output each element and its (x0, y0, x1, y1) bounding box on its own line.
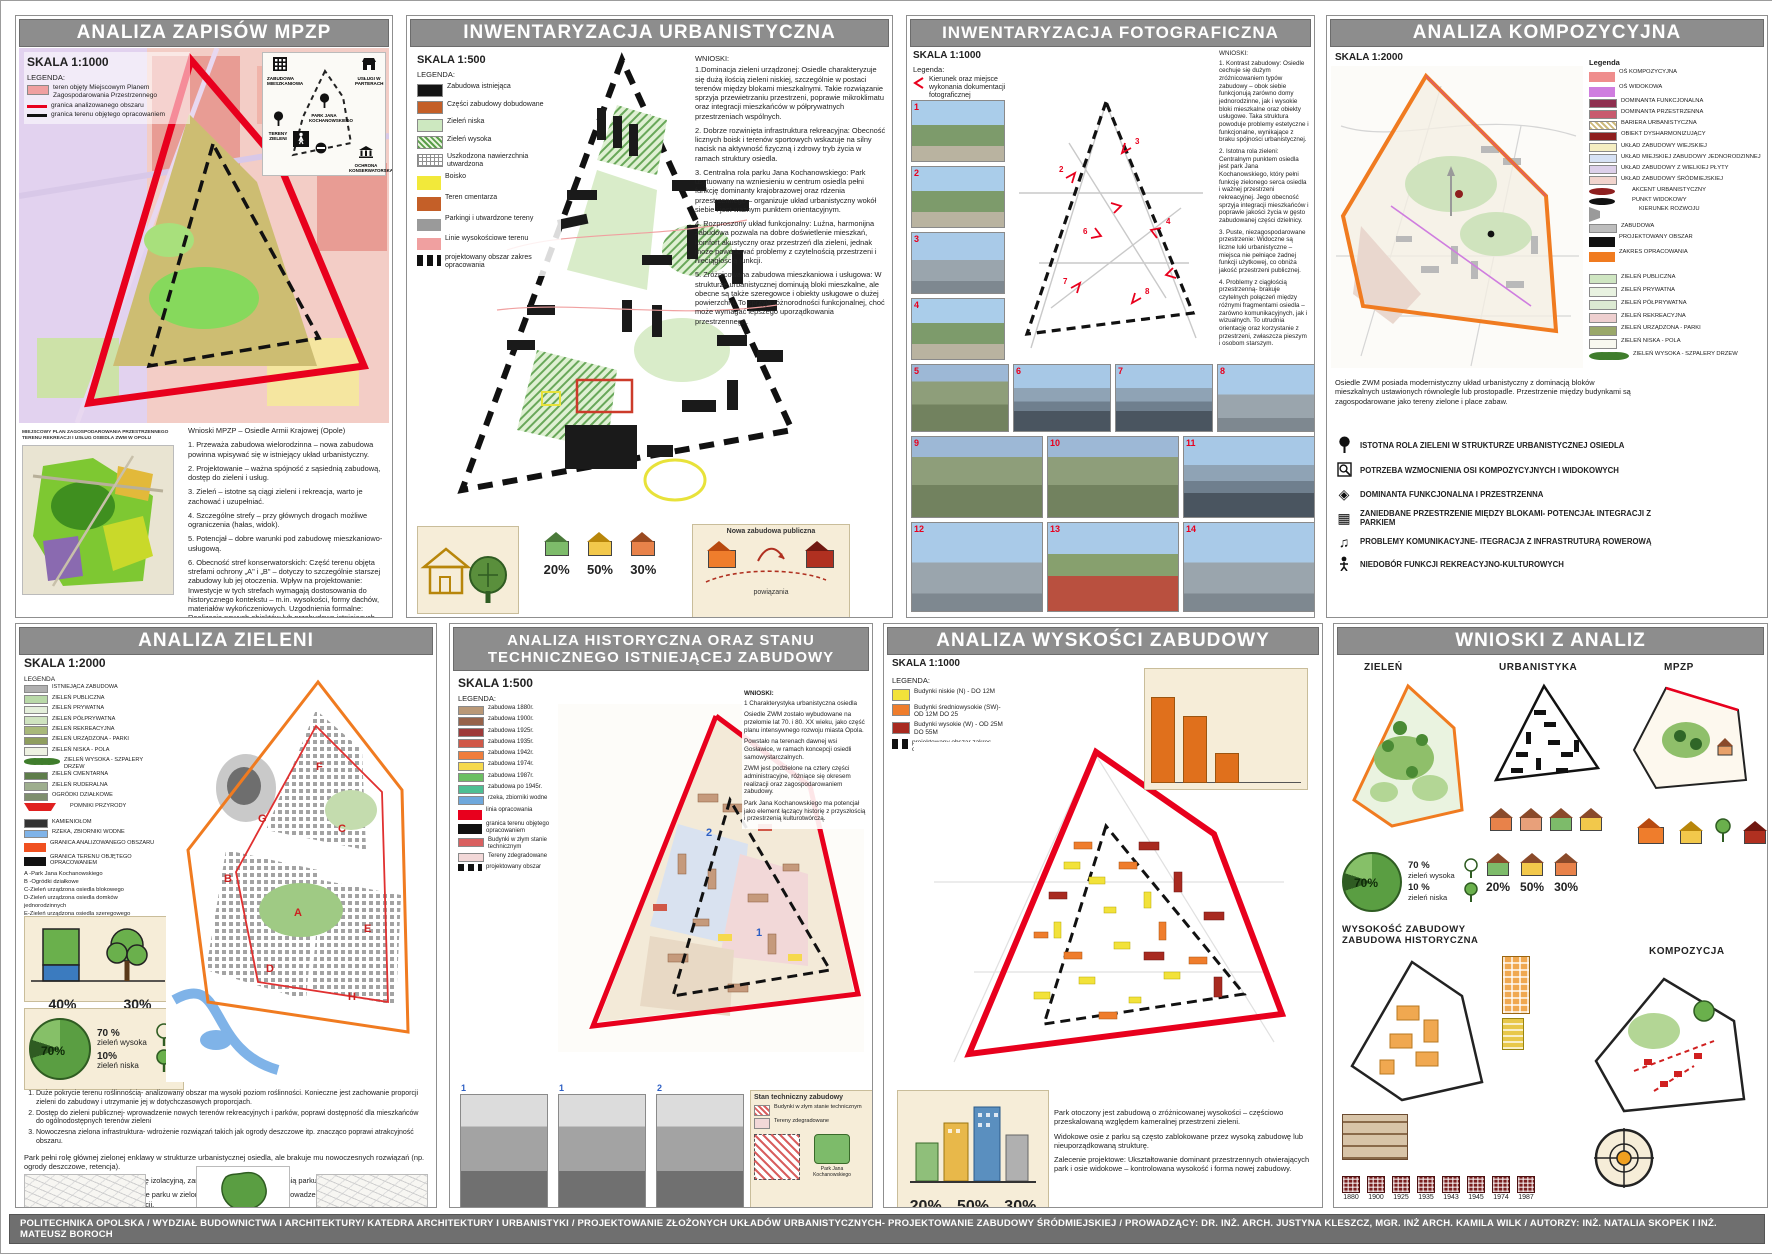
legend-swatch (754, 1105, 770, 1116)
legend-item: ZIELEŃ PRYWATNA (1589, 287, 1761, 298)
chart-bar (1215, 753, 1239, 783)
svg-text:6: 6 (1083, 227, 1088, 236)
legend-swatch (458, 728, 484, 737)
wnioski-paragraph: 3. Centralna rola parku Jana Kochanowski… (695, 168, 887, 214)
photo: 3 (911, 232, 1005, 294)
shop-icon (362, 57, 376, 71)
wnioski-paragraph: Osiedle ZWM zostało wybudowane na przeło… (744, 711, 868, 734)
legend-item: DOMINANTA PRZESTRZENNA (1589, 109, 1761, 119)
legend-swatch (1589, 274, 1617, 284)
legend-item: ZIELEŃ PUBLICZNA (1589, 274, 1761, 285)
legend-item: PUNKT WIDOKOWY (1589, 197, 1761, 205)
letter-item: C-Zieleń urządzona osiedla blokowego (24, 887, 159, 895)
legend-item: Zieleń wysoka (417, 136, 559, 150)
legend-item: AKCENT URBANISTYCZNY (1589, 187, 1761, 195)
svg-text:B: B (224, 873, 232, 885)
pie-chart: 70% (1342, 852, 1402, 912)
photo: 1 (911, 100, 1005, 162)
legend-swatch (1589, 176, 1617, 185)
panel-title: WNIOSKI Z ANALIZ (1337, 627, 1764, 655)
legend-label: LEGENDA: (27, 73, 187, 82)
legend-item: GRANICA TERENU OBJĘTEGO OPRACOWANIEM (24, 854, 159, 867)
inventory-wnioski: WNIOSKI: 1.Dominacja zieleni urządzonej:… (695, 54, 887, 331)
legend-item: ZIELEŃ REKREACYJNA (1589, 313, 1761, 324)
legend-item: Budynki średniowysokie (SW)- OD 12M DO 2… (892, 704, 1012, 719)
legend-item: Linie wysokościowe terenu (417, 235, 559, 251)
svg-text:7: 7 (1063, 277, 1068, 286)
legend-item: Uszkodzona nawierzchnia utwardzona (417, 153, 559, 169)
mpzp-wnioski: Wnioski MPZP – Osiedle Armii Krajowej (O… (188, 426, 386, 617)
legend-swatch (1589, 188, 1615, 195)
park-sketch-2 (316, 1174, 428, 1207)
pie-labels: 70 % zieleń wysoka 10 % zieleń niska (1408, 861, 1455, 902)
house-icon (1680, 830, 1702, 844)
pct-house: 20% (541, 530, 573, 610)
wnioski-paragraph: 1.Dominacja zieleni urządzonej: Osiedle … (695, 65, 887, 121)
legend-swatch (24, 716, 48, 725)
scheme-item-park: PARK JANA KOCHANOWSKIEGO (309, 93, 339, 123)
photo: 13 (1047, 522, 1179, 612)
legend-swatch (24, 857, 46, 867)
mpzp-minimap-block: MIEJSCOWY PLAN ZAGOSPODAROWANIA PRZESTRZ… (22, 430, 180, 600)
legend-swatch (1589, 352, 1615, 360)
legend-item: ZIELEŃ URZĄDZONA - PARKI (1589, 325, 1761, 336)
no-entry-icon (315, 141, 327, 159)
panel-inwentaryzacja-urbanistyczna: INWENTARYZACJA URBANISTYCZNA (406, 15, 893, 618)
legend-swatch (458, 762, 484, 771)
scale-label: SKALA 1:500 (417, 54, 559, 66)
legend-swatch (24, 843, 46, 853)
chart-bar (1183, 716, 1207, 783)
wnioski-label: WNIOSKI: (744, 690, 868, 698)
legend-item: RZEKA, ZBIORNIKI WODNE (24, 829, 159, 838)
legend-item: DOMINANTA FUNKCJONALNA (1589, 98, 1761, 108)
house-icon (1490, 817, 1512, 831)
tree-icons (1461, 858, 1481, 906)
legend-swatch (417, 101, 443, 114)
wnioski-label: WNIOSKI: (1219, 50, 1309, 58)
wnioski-title: Wnioski MPZP – Osiedle Armii Krajowej (O… (188, 426, 386, 435)
legend-item: teren objęty Miejscowym Planem Zagospoda… (27, 84, 187, 99)
mpzp-icons-row (1634, 816, 1767, 844)
note-paragraph: Park otoczony jest zabudową o zróżnicowa… (1054, 1108, 1310, 1127)
photo: 4 (911, 298, 1005, 360)
park-shape (216, 1169, 270, 1207)
letter-item: A -Park Jana Kochanowskiego (24, 871, 159, 879)
scale-label: SKALA 1:500 (458, 676, 533, 690)
legend-swatch (417, 154, 443, 167)
legend-swatch (1589, 287, 1617, 297)
card-label-top: Nowa zabudowa publiczna (696, 528, 846, 535)
year-item: 1880 (1342, 1176, 1360, 1201)
legend-swatch (1589, 72, 1615, 82)
tree-icon (272, 111, 285, 126)
svg-text:H: H (348, 991, 356, 1003)
legend-swatch (417, 197, 441, 211)
legend-swatch (892, 704, 910, 716)
svg-text:D: D (266, 963, 274, 975)
composition-paragraph: Osiedle ZWM posiada modernistyczny układ… (1335, 378, 1635, 411)
legend-swatch (1589, 143, 1617, 152)
legend-swatch (458, 785, 484, 794)
legend-swatch (1589, 87, 1615, 97)
conclusion-item: Nowoczesna zielona infrastruktura- wdroż… (36, 1129, 426, 1147)
panel-wnioski-z-analiz: WNIOSKI Z ANALIZ ZIELEŃ URBANISTYKA MPZP (1333, 623, 1768, 1208)
history-wnioski: WNIOSKI: 1 Charakterystyka urbanistyczna… (742, 688, 870, 829)
legend-item: ZIELEŃ RUDERALNA (24, 782, 159, 791)
photo: 7 (1115, 364, 1213, 432)
card-new-public: Nowa zabudowa publiczna powiązania (692, 524, 850, 617)
photo: 5 (911, 364, 1009, 432)
photo-legend: SKALA 1:1000 Legenda: Kierunek oraz miej… (913, 50, 1023, 103)
legend-item: GRANICA ANALIZOWANEGO OBSZARU (24, 840, 159, 853)
green-legend: LEGENDA ISTNIEJĄCA ZABUDOWA ZIELEŃ PUBLI… (24, 676, 159, 950)
person-icon (1335, 556, 1353, 574)
pie-chart: 70% (29, 1018, 91, 1080)
legend-item: ZIELEŃ PÓŁPRYWATNA (1589, 300, 1761, 311)
link-arrows (696, 568, 836, 584)
wnioski-paragraph: 4. Szczególne strefy – przy głównych dro… (188, 511, 386, 530)
conclusion-row: NIEDOBÓR FUNKCJI REKREACYJNO-KULTUROWYCH (1335, 556, 1675, 574)
legend-swatch (417, 136, 443, 149)
legend-swatch (27, 114, 47, 117)
legend-item: Tereny zdegradowane (754, 1118, 870, 1130)
photo-column: 1 2 3 4 (911, 100, 1005, 360)
footer-text: POLITECHNIKA OPOLSKA / WYDZIAŁ BUDOWNICT… (20, 1218, 1754, 1240)
wnioski-subtitle: 1 Charakterystyka urbanistyczna osiedla (744, 700, 868, 708)
scheme-item-zabudowa: ZABUDOWA MIESZKANIOWA (267, 57, 293, 86)
legend-item: ZIELEŃ CMENTARNA (24, 771, 159, 780)
tall-building-icon (1502, 956, 1530, 1050)
legend-label: LEGENDA: (892, 676, 1012, 685)
legend-swatch (892, 722, 910, 734)
legend-item: Kierunek oraz miejsce wykonania dokument… (913, 76, 1023, 100)
mpzp-minimap (22, 445, 174, 595)
svg-text:2: 2 (1059, 165, 1064, 174)
legend-label: Legenda (1589, 58, 1761, 67)
historic-photo: 2 (656, 1094, 744, 1207)
wnioski-paragraph: 1. Kontrast zabudowy: Osiedle cechuje si… (1219, 60, 1309, 144)
legend-swatch (24, 803, 56, 818)
scheme-item-zielen: TERENY ZIELENI (265, 111, 291, 141)
walker-icon-wrap (293, 131, 317, 152)
legend-swatch (458, 838, 484, 847)
legend-item: Budynki w złym stanie technicznym (754, 1104, 870, 1116)
green-map: ABC DEF GH (166, 670, 430, 1082)
conclusion-item: Dostęp do zieleni publicznej- wprowadzen… (36, 1110, 426, 1128)
legend-swatch (24, 695, 48, 704)
legend-swatch (458, 810, 482, 820)
bar-tree-chart (25, 917, 171, 997)
house-icon (1638, 827, 1664, 844)
legend-swatch (1589, 99, 1617, 108)
year-item: 1925 (1392, 1176, 1410, 1201)
section-label-zielen: ZIELEŃ (1364, 662, 1403, 673)
wnioski-paragraph: Park Jana Kochanowskiego ma potencjał ja… (744, 800, 868, 823)
pct-house: 50% (1520, 852, 1544, 894)
panel-analiza-wysokosci: ANALIZA WYSKOŚCI ZABUDOWY SKALA 1:1000 L… (883, 623, 1323, 1208)
percent-houses-row: 20% 50% 30% (1486, 852, 1578, 894)
height-notes: Park otoczony jest zabudową o zróżnicowa… (1054, 1108, 1310, 1179)
legend-label: LEGENDA: (417, 70, 559, 79)
legend-item: ZIELEŃ WYSOKA - SZPALERY DRZEW (24, 757, 159, 770)
historic-photo: 1 (558, 1094, 646, 1207)
legend-item: OBIEKT DYSHARMONIZUJĄCY (1589, 131, 1761, 141)
scale-label: SKALA 1:1000 (27, 55, 187, 69)
legend-item: ZIELEŃ URZĄDZONA - PARKI (24, 736, 159, 745)
chart-bar (1151, 697, 1175, 783)
years-row: 1880 1900 1925 1935 1943 1945 (1342, 1176, 1535, 1201)
conclusion-item: Duże pokrycie terenu roślinnością- anali… (36, 1090, 426, 1108)
legend-item: ZIELEŃ REKREACYJNA (24, 726, 159, 735)
wnioski-paragraph: 6. Obecność stref konserwatorskich: Częś… (188, 558, 386, 617)
wnioski-pie: 70% 70 % zieleń wysoka 10 % zieleń niska (1342, 852, 1482, 912)
legend-swatch (24, 772, 48, 781)
legend-swatch (24, 830, 48, 839)
legend-item: Budynki wysokie (W) - OD 25M DO 55M (892, 721, 1012, 736)
panel-title: INWENTARYZACJA FOTOGRAFICZNA (910, 19, 1311, 47)
legend-item: ZAKRES OPRACOWANIA (1589, 249, 1761, 262)
legend-swatch (458, 824, 482, 834)
legend-swatch (417, 219, 441, 231)
panel-title: ANALIZA HISTORYCZNA ORAZ STANU TECHNICZN… (453, 627, 869, 671)
legend-swatch (1589, 154, 1617, 163)
conclusion-row: POTRZEBA WZMOCNIENIA OSI KOMPOZYCYJNYCH … (1335, 462, 1675, 480)
svg-text:1: 1 (756, 927, 762, 939)
legend-swatch (24, 685, 48, 694)
legend-swatch (417, 176, 441, 190)
scheme-item-ochrona: OCHRONA KONSERWATORSKA (349, 145, 383, 173)
legend-item: KIERUNEK ROZWOJU (1589, 206, 1761, 222)
card-houses-row (696, 539, 846, 568)
legend-item: Boisko (417, 173, 559, 190)
legend-swatch (1589, 224, 1617, 233)
legend-item: ZIELEŃ NISKA - POLA (24, 747, 159, 756)
svg-text:2: 2 (706, 827, 712, 839)
mpzp-legend: SKALA 1:1000 LEGENDA: teren objęty Miejs… (24, 52, 190, 124)
legend-swatch (24, 758, 46, 765)
panel-title: ANALIZA ZIELENI (19, 627, 433, 655)
legend-item: Teren cmentarza (417, 194, 559, 211)
composition-map (1331, 66, 1583, 368)
year-item: 1900 (1367, 1176, 1385, 1201)
legend-swatch (458, 739, 484, 748)
building-icon (1467, 1176, 1485, 1193)
direction-arrow-icon (913, 76, 925, 90)
sketch-zielen (1342, 680, 1474, 830)
letter-item: D-Zieleń urządzona osiedla domków jednor… (24, 895, 159, 911)
house-icon (708, 550, 736, 568)
park-shape-box: Park Jana Kochanowskiego (196, 1166, 290, 1207)
composition-conclusions: ISTOTNA ROLA ZIELENI W STRUKTURZE URBANI… (1335, 430, 1675, 580)
legend-swatch (754, 1118, 770, 1129)
legend-swatch (417, 119, 443, 132)
panel-title: ANALIZA ZAPISÓW MPZP (19, 19, 389, 47)
stan-title: Stan techniczny zabudowy (754, 1094, 870, 1101)
wnioski-paragraph: Powstało na terenach dawnej wsi Gosławic… (744, 738, 868, 761)
wnioski-paragraph: 5. Zróżnicowana zabudowa mieszkaniowa i … (695, 270, 887, 326)
wnioski-paragraph: 4. Rozproszony układ funkcjonalny: Luźna… (695, 219, 887, 265)
svg-text:3: 3 (1135, 137, 1140, 146)
svg-text:A: A (294, 907, 302, 919)
legend-swatch (417, 255, 441, 266)
height-map (914, 742, 1294, 1072)
legend-swatch (458, 706, 484, 715)
city-illustration (908, 1095, 1038, 1187)
building-icon (1417, 1176, 1435, 1193)
scale-label: SKALA 1:1000 (913, 50, 1023, 61)
legend-swatch (24, 726, 48, 735)
legend-swatch (24, 782, 48, 791)
house-icon (806, 550, 834, 568)
year-item: 1945 (1467, 1176, 1485, 1201)
pct-house: 50% (584, 530, 616, 610)
sketch-urbanistyka (1486, 680, 1606, 798)
panel-analiza-zapisow-mpzp: ANALIZA ZAPISÓW MPZP SKALA 1:10 (15, 15, 393, 618)
wnioski-paragraph: 2. Dobrze rozwinięta infrastruktura rekr… (695, 126, 887, 163)
legend-item: OGRÓDKI DZIAŁKOWE (24, 792, 159, 801)
conclusion-row: ▦ ZANIEDBANE PRZESTRZENIE MIĘDZY BLOKAMI… (1335, 509, 1675, 528)
legend-item: ZABUDOWA (1589, 223, 1761, 233)
stan-techniczny-box: Stan techniczny zabudowy Budynki w złym … (750, 1090, 872, 1207)
sketch-mpzp (1626, 680, 1760, 798)
legend-swatch (1589, 110, 1617, 119)
photo-row-3: 12 13 14 (911, 522, 1314, 612)
magnifier-icon (1335, 462, 1353, 480)
note-paragraph: Zalecenie projektowe: Ukształtowanie dom… (1054, 1155, 1310, 1174)
photo: 14 (1183, 522, 1314, 612)
wnioski-paragraph: 5. Potencjał – dobre warunki pod zabudow… (188, 534, 386, 553)
building-icon (1492, 1176, 1510, 1193)
wnioski-paragraph: 3. Puste, niezagospodarowane przestrzeni… (1219, 229, 1309, 275)
house-tree-icons (418, 527, 514, 609)
tree-icon (318, 93, 331, 108)
photo: 8 (1217, 364, 1314, 432)
legend-swatch (24, 793, 48, 802)
house-icon (1487, 862, 1509, 876)
building-icon (1442, 1176, 1460, 1193)
legend-item: UKŁAD ZABUDOWY Z WIELKIEJ PŁYTY (1589, 165, 1761, 175)
panel-title: ANALIZA KOMPOZYCYJNA (1330, 19, 1764, 47)
music-notes-icon: ♫ (1335, 534, 1353, 550)
composition-legend: Legenda OŚ KOMPOZYCYJNA OŚ WIDOKOWA DOMI… (1589, 54, 1761, 363)
stan-diagram (754, 1134, 800, 1180)
photo: 10 (1047, 436, 1179, 518)
legend-swatch (24, 819, 48, 828)
legend-swatch (24, 737, 48, 746)
museum-icon (359, 146, 373, 158)
stan-park: Park Jana Kochanowskiego (806, 1134, 858, 1178)
legend-item: UKŁAD ZABUDOWY WIEJSKIEJ (1589, 143, 1761, 153)
house-icon (1744, 830, 1766, 844)
photo: 2 (911, 166, 1005, 228)
wnioski-paragraph: ZWM jest podzielone na cztery części adm… (744, 765, 868, 796)
panel-analiza-kompozycyjna: ANALIZA KOMPOZYCYJNA SKALA 1:2000 (1326, 15, 1768, 618)
legend-swatch (1589, 326, 1617, 336)
photo-row-2: 9 10 11 (911, 436, 1314, 518)
legend-item: ZIELEŃ NISKA - POLA (1589, 338, 1761, 349)
legend-item: Zabudowa istniejąca (417, 83, 559, 97)
label-kompozycja: KOMPOZYCJA (1649, 946, 1725, 957)
legend-swatch (1589, 252, 1615, 262)
photo-wnioski: WNIOSKI: 1. Kontrast zabudowy: Osiedle c… (1219, 50, 1309, 352)
legend-swatch (1589, 132, 1617, 141)
wnioski-paragraph: 2. Projektowanie – ważna spójność z sąsi… (188, 464, 386, 483)
sketch-kompozycja (1584, 971, 1760, 1121)
legend-swatch (417, 238, 441, 250)
legend-swatch (1589, 237, 1615, 247)
tree-icon (1714, 818, 1732, 844)
legend-swatch (1589, 300, 1617, 310)
svg-text:8: 8 (1145, 287, 1150, 296)
legend-swatch (458, 751, 484, 760)
photo-map: 234 678 (1011, 88, 1211, 356)
legend-item: ZIELEŃ PRYWATNA (24, 705, 159, 714)
legend-item: ZIELEŃ PUBLICZNA (24, 695, 159, 704)
sketch-wysokosc (1342, 956, 1492, 1106)
building-icon (1342, 1176, 1360, 1193)
legend-item: ISTNIEJĄCA ZABUDOWA (24, 684, 159, 693)
wnioski-paragraph: 1. Przeważa zabudowa wielorodzinna – now… (188, 440, 386, 459)
legend-swatch (27, 105, 47, 108)
legend-item: UKŁAD MIEJSKIEJ ZABUDOWY JEDNORODZINNEJ (1589, 154, 1761, 164)
legend-item: granica analizowanego obszaru (27, 102, 187, 110)
legend-swatch (24, 706, 48, 715)
svg-text:F: F (316, 761, 323, 773)
wnioski-label: WNIOSKI: (695, 54, 887, 63)
section-label-urbanistyka: URBANISTYKA (1499, 662, 1577, 673)
house-icon (1520, 817, 1542, 831)
house-icon (1555, 862, 1577, 876)
houses-row (1486, 806, 1606, 831)
inventory-legend: SKALA 1:500 LEGENDA: Zabudowa istniejąca… (415, 52, 561, 276)
label-wysokosc-zabudowy: WYSOKOŚĆ ZABUDOWY ZABUDOWA HISTORYCZNA (1342, 924, 1478, 946)
legend-swatch (458, 853, 484, 862)
legend-swatch (1589, 121, 1617, 130)
svg-text:G: G (258, 813, 267, 825)
conclusion-row: ISTOTNA ROLA ZIELENI W STRUKTURZE URBANI… (1335, 436, 1675, 456)
legend-swatch (1589, 313, 1617, 323)
svg-text:4: 4 (1166, 217, 1171, 226)
pct-house: 30% (1554, 852, 1578, 894)
legend-swatch (892, 739, 908, 749)
svg-text:C: C (338, 823, 346, 835)
conclusion-row: ◈ DOMINANTA FUNKCJONALNA I PRZESTRZENNA (1335, 486, 1675, 503)
legend-swatch (458, 864, 482, 871)
history-photos: 1 1 2 (460, 1082, 744, 1207)
scheme-item-uslugi: USŁUGI W PARTERACH (355, 57, 383, 86)
wnioski-paragraph: 2. Istotna rola zieleni: Centralnym punk… (1219, 148, 1309, 225)
legend-item: Parkingi i utwardzone tereny (417, 215, 559, 231)
legend-swatch (458, 796, 484, 805)
building-icon (273, 57, 287, 71)
panel-inwentaryzacja-fotograficzna: INWENTARYZACJA FOTOGRAFICZNA SKALA 1:100… (906, 15, 1315, 618)
legend-item: ZIELEŃ WYSOKA - SZPALERY DRZEW (1589, 351, 1761, 360)
link-arrow-icon (756, 543, 786, 565)
legend-swatch (1589, 339, 1617, 349)
legend-item: granica terenu objętego opracowaniem (27, 111, 187, 119)
legend-item: OŚ KOMPOZYCYJNA (1589, 69, 1761, 82)
house-icon (1580, 817, 1602, 831)
height-percent-box: 20% 50% 30% (897, 1090, 1049, 1207)
legend-swatch (892, 689, 910, 701)
card-percent-houses: 20% 50% 30% (535, 530, 665, 610)
legend-item: POMNIKI PRZYRODY (24, 803, 159, 818)
legend-swatch (458, 717, 484, 726)
wnioski-paragraph: 4. Problemy z ciągłością przestrzenną- b… (1219, 279, 1309, 348)
bricks-icon (1342, 1114, 1408, 1160)
photo-row-1: 5 6 7 8 (911, 364, 1314, 432)
